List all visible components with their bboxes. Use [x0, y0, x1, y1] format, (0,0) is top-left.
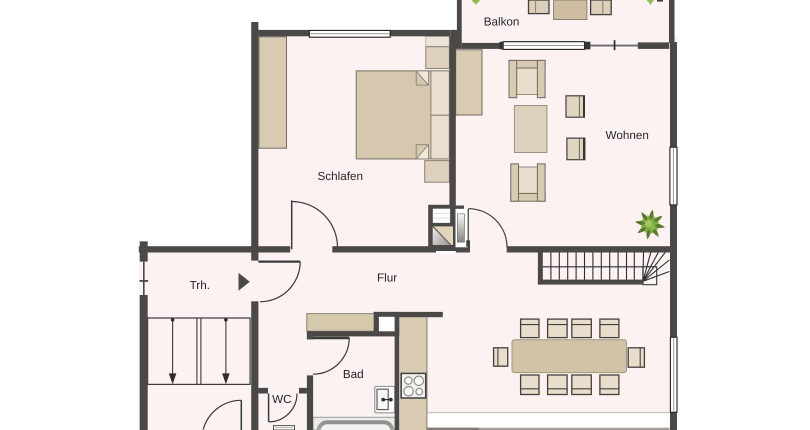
svg-text:Bad: Bad — [343, 368, 364, 381]
svg-text:Wohnen: Wohnen — [606, 129, 649, 142]
svg-text:Flur: Flur — [377, 272, 397, 285]
svg-text:Balkon: Balkon — [484, 15, 520, 28]
svg-text:WC: WC — [272, 393, 291, 406]
svg-text:Trh.: Trh. — [190, 279, 210, 292]
svg-text:Schlafen: Schlafen — [318, 170, 363, 183]
